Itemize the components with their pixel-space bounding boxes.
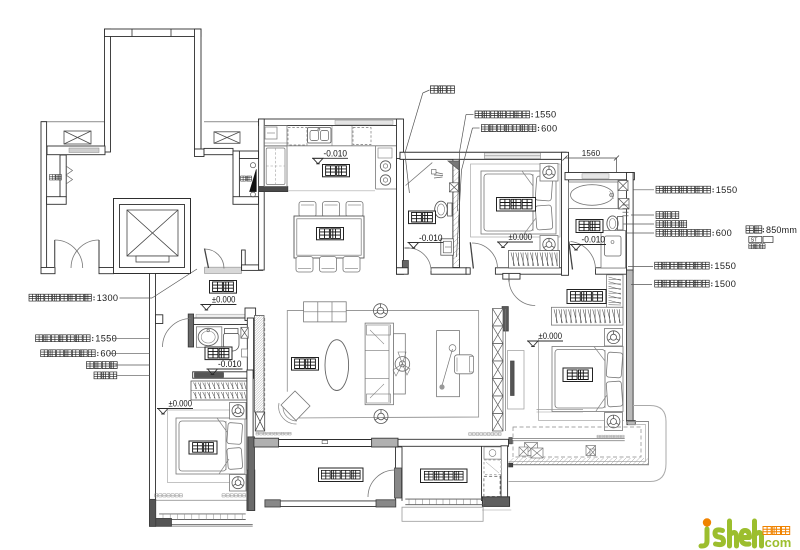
- svg-text:1300: 1300: [97, 293, 119, 303]
- svg-text:-0.010: -0.010: [582, 235, 606, 245]
- svg-text:600: 600: [716, 228, 732, 238]
- svg-text:ST: ST: [751, 238, 759, 244]
- svg-text:1550: 1550: [714, 261, 736, 271]
- svg-text:1550: 1550: [535, 110, 557, 120]
- svg-text:±0.000: ±0.000: [212, 295, 236, 305]
- svg-text:-0.010: -0.010: [218, 359, 242, 369]
- svg-text:±0.000: ±0.000: [169, 399, 193, 409]
- svg-text:±0.000: ±0.000: [539, 331, 563, 341]
- svg-text:600: 600: [541, 123, 557, 133]
- svg-text:1560: 1560: [582, 149, 601, 158]
- svg-text:850mm: 850mm: [766, 225, 797, 235]
- svg-text:±0.000: ±0.000: [509, 232, 533, 242]
- svg-text:1500: 1500: [714, 279, 736, 289]
- svg-text:-0.010: -0.010: [419, 233, 443, 243]
- svg-text:-0.010: -0.010: [324, 149, 348, 159]
- svg-text:.com: .com: [761, 535, 791, 550]
- svg-text:1550: 1550: [716, 185, 738, 195]
